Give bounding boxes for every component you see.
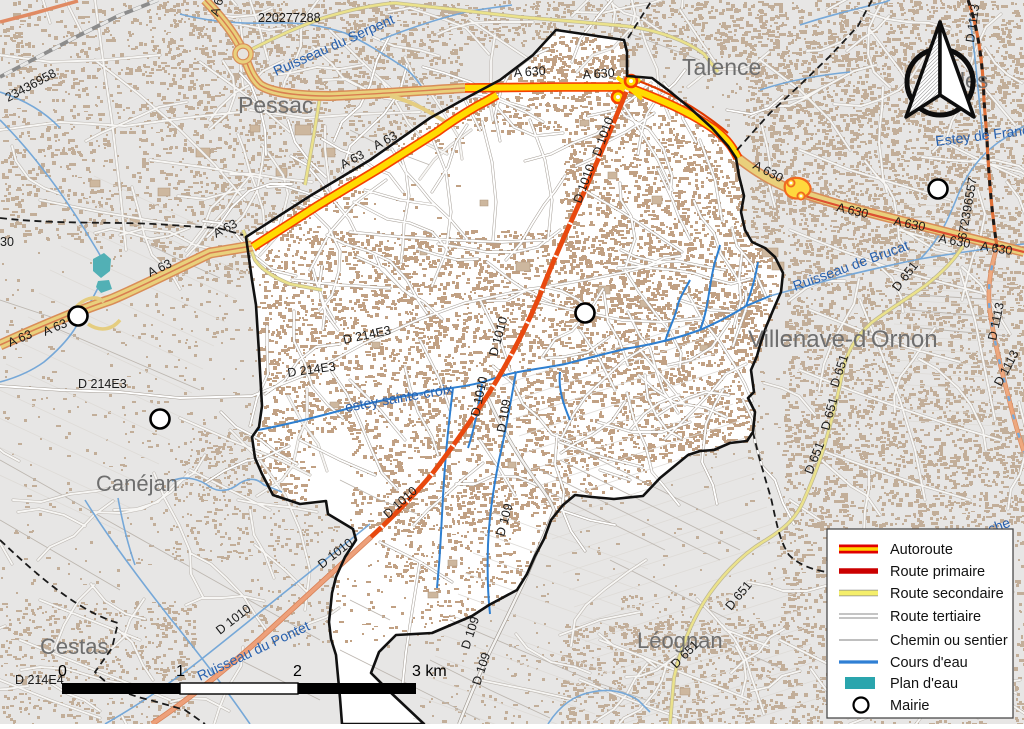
- svg-text:0: 0: [58, 663, 67, 680]
- svg-text:A 630: A 630: [513, 64, 546, 80]
- svg-text:3 km: 3 km: [412, 663, 447, 680]
- svg-text:1: 1: [176, 663, 185, 680]
- svg-text:Cours d'eau: Cours d'eau: [890, 655, 968, 671]
- svg-text:A 630: A 630: [582, 66, 615, 82]
- svg-text:Route tertiaire: Route tertiaire: [890, 609, 981, 625]
- svg-text:2: 2: [293, 663, 302, 680]
- svg-text:Route secondaire: Route secondaire: [890, 586, 1004, 602]
- svg-text:Canéjan: Canéjan: [96, 471, 178, 496]
- svg-text:220277288: 220277288: [258, 11, 321, 25]
- svg-text:Pessac: Pessac: [238, 92, 313, 118]
- svg-text:Cestas: Cestas: [40, 634, 108, 659]
- svg-text:Route primaire: Route primaire: [890, 564, 985, 580]
- svg-text:Autoroute: Autoroute: [890, 542, 953, 558]
- svg-text:Chemin ou sentier: Chemin ou sentier: [890, 633, 1008, 649]
- svg-text:30: 30: [0, 235, 14, 249]
- svg-text:D 214E3: D 214E3: [78, 377, 127, 391]
- svg-text:Talence: Talence: [682, 54, 761, 80]
- svg-text:Villenave-d'Ornon: Villenave-d'Ornon: [748, 326, 938, 353]
- svg-text:Mairie: Mairie: [890, 698, 929, 714]
- svg-text:Plan d'eau: Plan d'eau: [890, 676, 958, 692]
- svg-text:D 214E4: D 214E4: [15, 673, 64, 687]
